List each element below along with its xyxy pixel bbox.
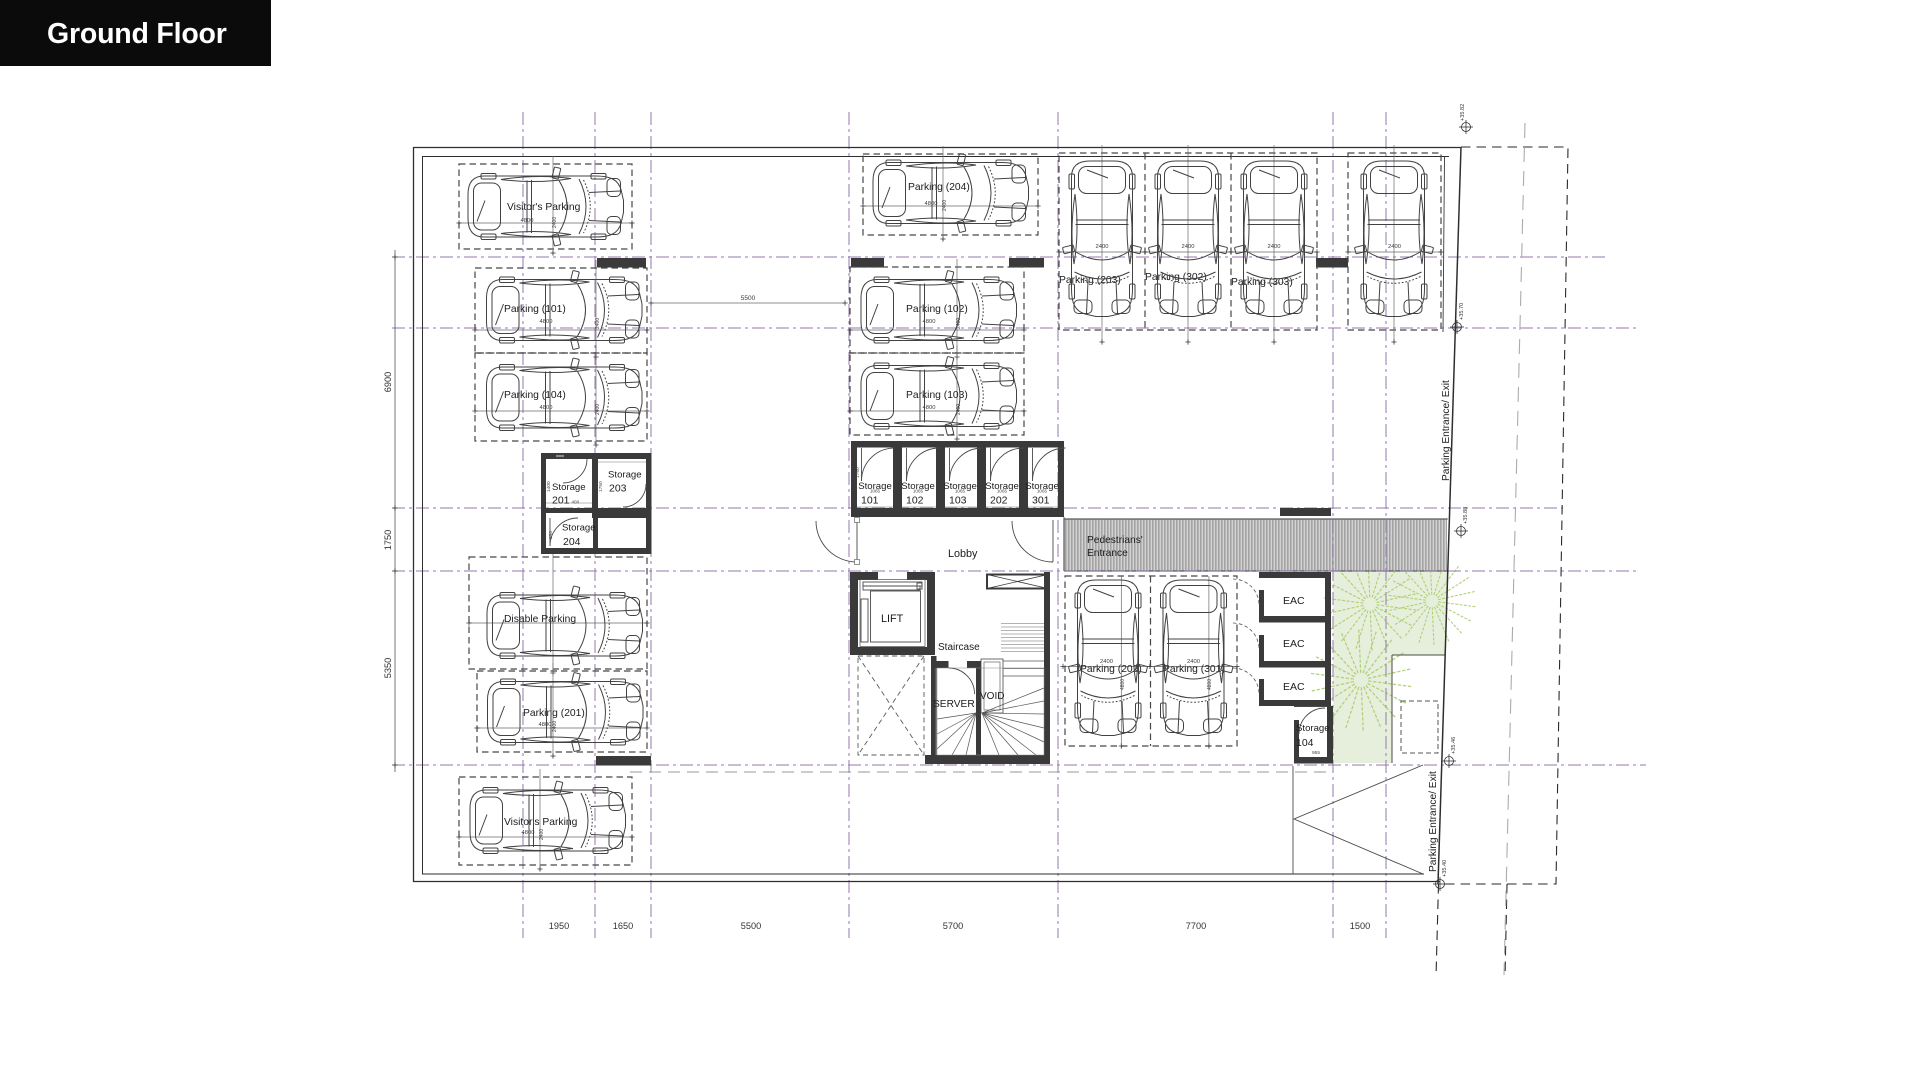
svg-text:Parking (202): Parking (202) bbox=[1080, 664, 1142, 675]
svg-text:Pedestrians': Pedestrians' bbox=[1087, 535, 1143, 546]
svg-text:2400: 2400 bbox=[942, 200, 948, 211]
svg-text:5350: 5350 bbox=[383, 658, 393, 678]
svg-text:LIFT: LIFT bbox=[881, 613, 904, 625]
svg-text:Parking (204): Parking (204) bbox=[908, 182, 970, 193]
svg-text:1400: 1400 bbox=[546, 481, 552, 492]
svg-text:2400: 2400 bbox=[595, 318, 601, 329]
svg-text:Disable Parking: Disable Parking bbox=[504, 614, 576, 625]
svg-text:201: 201 bbox=[552, 495, 570, 507]
svg-text:2400: 2400 bbox=[552, 217, 558, 228]
svg-text:204: 204 bbox=[563, 536, 581, 548]
svg-text:Entrance: Entrance bbox=[1087, 548, 1128, 559]
svg-text:1500: 1500 bbox=[1350, 921, 1370, 931]
svg-text:1065: 1065 bbox=[870, 489, 881, 494]
svg-text:1065: 1065 bbox=[997, 489, 1008, 494]
svg-text:Parking (201): Parking (201) bbox=[523, 708, 585, 719]
svg-text:Lobby: Lobby bbox=[948, 548, 978, 560]
svg-text:4800: 4800 bbox=[539, 722, 552, 728]
svg-text:1065: 1065 bbox=[913, 489, 924, 494]
svg-text:Storage: Storage bbox=[1296, 723, 1330, 734]
svg-text:350: 350 bbox=[548, 531, 554, 539]
svg-text:Parking (104): Parking (104) bbox=[504, 390, 566, 401]
svg-text:SERVER: SERVER bbox=[933, 699, 975, 710]
svg-text:2400: 2400 bbox=[539, 829, 545, 840]
svg-text:1750: 1750 bbox=[383, 530, 393, 550]
svg-text:Visitor's Parking: Visitor's Parking bbox=[504, 817, 578, 828]
svg-text:2400: 2400 bbox=[595, 404, 601, 415]
svg-text:5700: 5700 bbox=[943, 921, 963, 931]
svg-text:5500: 5500 bbox=[741, 921, 761, 931]
svg-text:Ground Floor: Ground Floor bbox=[47, 18, 227, 50]
svg-text:Parking (203): Parking (203) bbox=[1059, 275, 1121, 286]
svg-text:Storage: Storage bbox=[552, 482, 586, 493]
svg-text:1065: 1065 bbox=[1037, 489, 1048, 494]
svg-text:Storage: Storage bbox=[608, 470, 642, 481]
svg-text:2400: 2400 bbox=[1388, 244, 1401, 250]
svg-text:1750: 1750 bbox=[598, 481, 604, 492]
svg-text:5500: 5500 bbox=[741, 295, 756, 302]
svg-text:Parking (102): Parking (102) bbox=[906, 304, 968, 315]
svg-text:202: 202 bbox=[990, 495, 1008, 507]
svg-text:Storage: Storage bbox=[562, 523, 596, 534]
svg-text:Parking Entrance/ Exit: Parking Entrance/ Exit bbox=[1441, 380, 1452, 481]
svg-text:2400: 2400 bbox=[552, 721, 558, 732]
svg-text:+35.88: +35.88 bbox=[1463, 507, 1469, 524]
svg-text:4800: 4800 bbox=[522, 830, 535, 836]
svg-text:1750: 1750 bbox=[855, 467, 861, 478]
svg-text:102: 102 bbox=[906, 495, 924, 507]
svg-text:6900: 6900 bbox=[383, 372, 393, 392]
svg-text:301: 301 bbox=[1032, 495, 1050, 507]
svg-text:1650: 1650 bbox=[613, 921, 633, 931]
svg-text:4800: 4800 bbox=[1120, 679, 1126, 690]
svg-text:Staircase: Staircase bbox=[938, 642, 980, 653]
svg-text:VOID: VOID bbox=[980, 691, 1004, 702]
svg-text:Visitor's Parking: Visitor's Parking bbox=[507, 202, 581, 213]
svg-text:+35.40: +35.40 bbox=[1442, 860, 1448, 877]
svg-text:400: 400 bbox=[572, 500, 580, 505]
svg-text:Parking Entrance/ Exit: Parking Entrance/ Exit bbox=[1428, 771, 1439, 872]
svg-text:101: 101 bbox=[861, 495, 879, 507]
svg-text:+35.82: +35.82 bbox=[1460, 104, 1466, 121]
svg-text:203: 203 bbox=[609, 483, 627, 495]
svg-text:EAC: EAC bbox=[1283, 681, 1305, 693]
svg-text:EAC: EAC bbox=[1283, 638, 1305, 650]
svg-text:Parking (101): Parking (101) bbox=[504, 304, 566, 315]
svg-text:4800: 4800 bbox=[1207, 679, 1213, 690]
svg-text:103: 103 bbox=[949, 495, 967, 507]
svg-text:7700: 7700 bbox=[1186, 921, 1206, 931]
svg-text:EAC: EAC bbox=[1283, 595, 1305, 607]
svg-text:1065: 1065 bbox=[955, 489, 966, 494]
svg-text:Parking (103): Parking (103) bbox=[906, 390, 968, 401]
svg-text:4800: 4800 bbox=[925, 201, 938, 207]
svg-text:104: 104 bbox=[1296, 737, 1314, 749]
svg-text:1950: 1950 bbox=[549, 921, 569, 931]
svg-text:955: 955 bbox=[1312, 750, 1320, 756]
svg-text:+35.46: +35.46 bbox=[1451, 737, 1457, 754]
svg-text:+35.70: +35.70 bbox=[1459, 303, 1465, 320]
